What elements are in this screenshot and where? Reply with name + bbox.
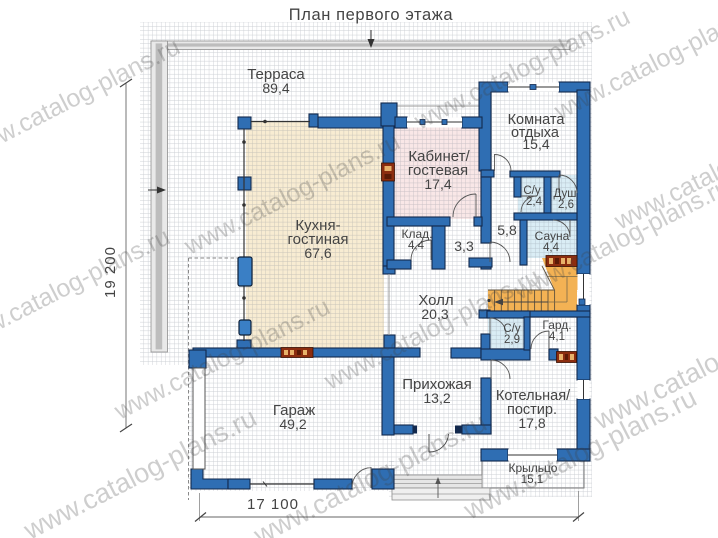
svg-text:4,4: 4,4 — [408, 240, 425, 252]
svg-text:49,2: 49,2 — [279, 416, 306, 432]
svg-text:План первого этажа: План первого этажа — [289, 6, 454, 24]
svg-text:Клад.: Клад. — [401, 227, 432, 241]
svg-text:3,3: 3,3 — [454, 238, 474, 254]
svg-text:5,8: 5,8 — [497, 222, 517, 238]
svg-text:2,4: 2,4 — [526, 196, 543, 208]
svg-text:15,4: 15,4 — [522, 136, 549, 152]
svg-text:Гард.: Гард. — [542, 318, 571, 332]
svg-text:4,4: 4,4 — [543, 242, 560, 254]
svg-text:4,1: 4,1 — [549, 331, 565, 343]
svg-text:2,6: 2,6 — [558, 199, 574, 211]
svg-text:2,9: 2,9 — [504, 334, 520, 346]
svg-text:17,8: 17,8 — [518, 415, 545, 431]
svg-text:13,2: 13,2 — [423, 390, 450, 406]
svg-text:Сауна: Сауна — [535, 229, 570, 243]
svg-text:17,4: 17,4 — [424, 176, 451, 192]
svg-text:67,6: 67,6 — [304, 245, 331, 261]
svg-text:89,4: 89,4 — [262, 80, 289, 96]
